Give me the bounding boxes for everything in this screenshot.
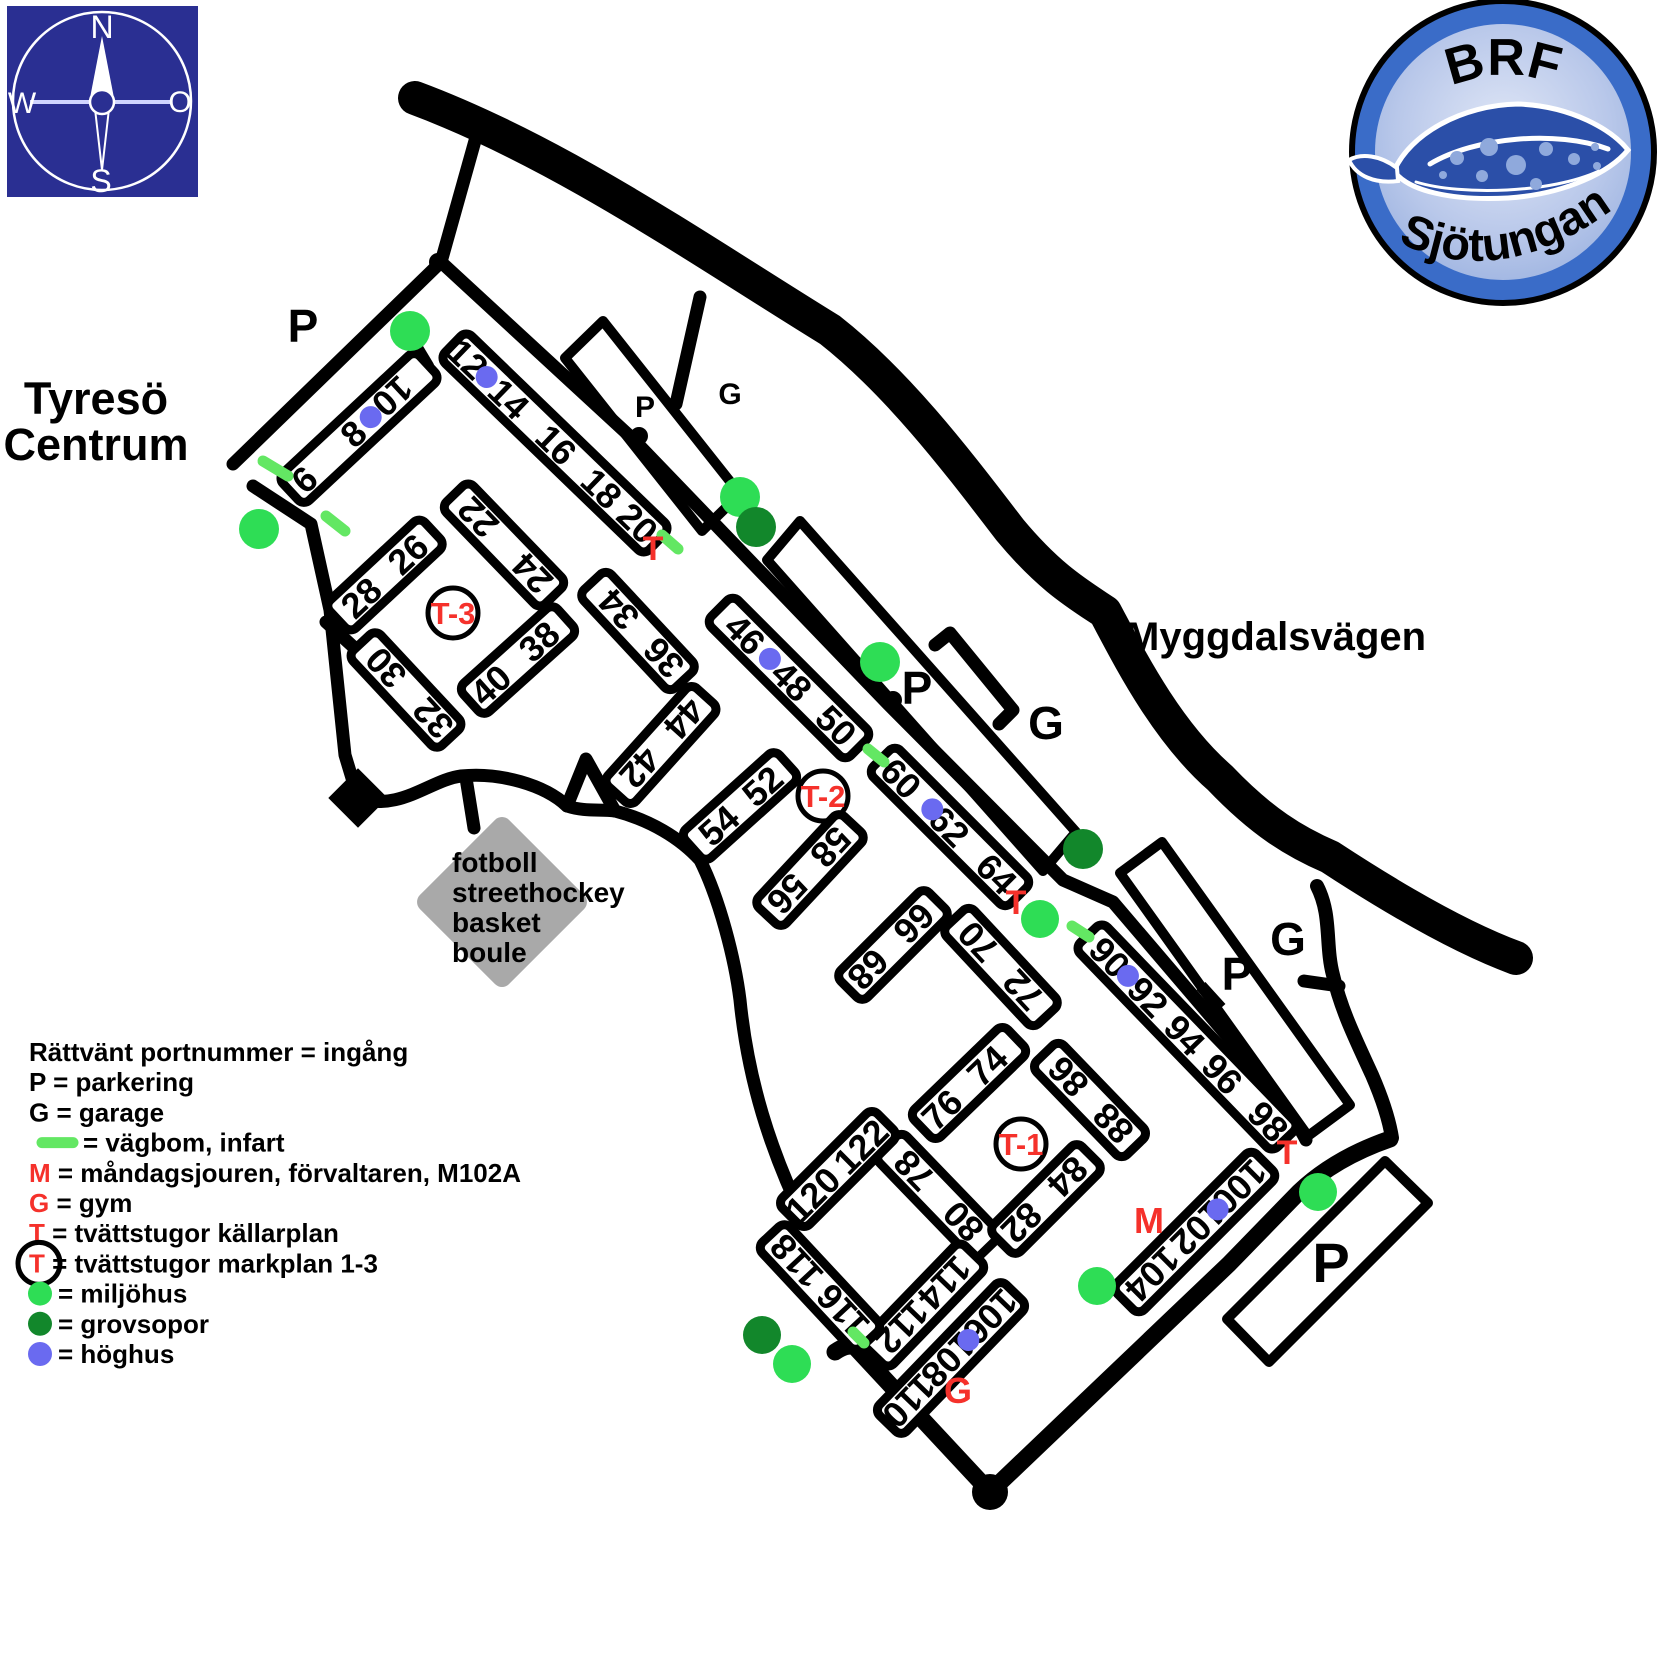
svg-text:T = tvättstugor markplan 1-3: T = tvättstugor markplan 1-3 — [29, 1248, 378, 1278]
svg-text:streethockey: streethockey — [452, 877, 625, 908]
svg-text:G: G — [718, 378, 741, 411]
svg-text:T: T — [643, 530, 664, 568]
svg-text:M = måndagsjouren, förvaltaren: M = måndagsjouren, förvaltaren, M102A — [29, 1158, 521, 1188]
svg-text:P: P — [288, 300, 319, 352]
svg-text:= grovsopor: = grovsopor — [58, 1309, 209, 1339]
svg-text:= miljöhus: = miljöhus — [58, 1279, 187, 1309]
svg-text:Rättvänt portnummer = ingång: Rättvänt portnummer = ingång — [29, 1037, 408, 1067]
svg-text:P: P — [902, 662, 933, 714]
svg-text:boule: boule — [452, 937, 527, 968]
svg-text:Tyresö: Tyresö — [24, 373, 168, 424]
svg-text:Centrum: Centrum — [3, 419, 188, 470]
svg-text:P: P — [635, 391, 655, 424]
svg-text:= vägbom, infart: = vägbom, infart — [83, 1128, 285, 1158]
svg-text:BRF: BRF — [1439, 29, 1568, 97]
svg-text:T: T — [1006, 884, 1027, 922]
svg-text:T: T — [1277, 1134, 1298, 1172]
svg-text:basket: basket — [452, 907, 541, 938]
svg-text:G: G — [1270, 913, 1306, 965]
svg-text:M: M — [1134, 1200, 1164, 1241]
svg-text:Myggdalsvägen: Myggdalsvägen — [1126, 615, 1426, 659]
svg-text:S: S — [90, 163, 111, 199]
svg-text:W: W — [8, 87, 37, 120]
svg-text:G = garage: G = garage — [29, 1097, 164, 1127]
svg-text:P: P — [1312, 1231, 1349, 1294]
svg-text:P: P — [1222, 948, 1253, 1000]
svg-text:T = tvättstugor källarplan: T = tvättstugor källarplan — [29, 1218, 339, 1248]
svg-text:T-3: T-3 — [431, 596, 476, 631]
svg-text:O: O — [168, 86, 191, 119]
svg-text:P = parkering: P = parkering — [29, 1067, 194, 1097]
svg-text:N: N — [90, 9, 113, 45]
svg-text:T-2: T-2 — [801, 779, 846, 814]
svg-text:= höghus: = höghus — [58, 1339, 174, 1369]
svg-text:fotboll: fotboll — [452, 847, 538, 878]
svg-text:G: G — [1028, 697, 1064, 749]
svg-text:G: G — [944, 1370, 972, 1411]
svg-text:G = gym: G = gym — [29, 1188, 132, 1218]
svg-text:T-1: T-1 — [999, 1127, 1044, 1162]
